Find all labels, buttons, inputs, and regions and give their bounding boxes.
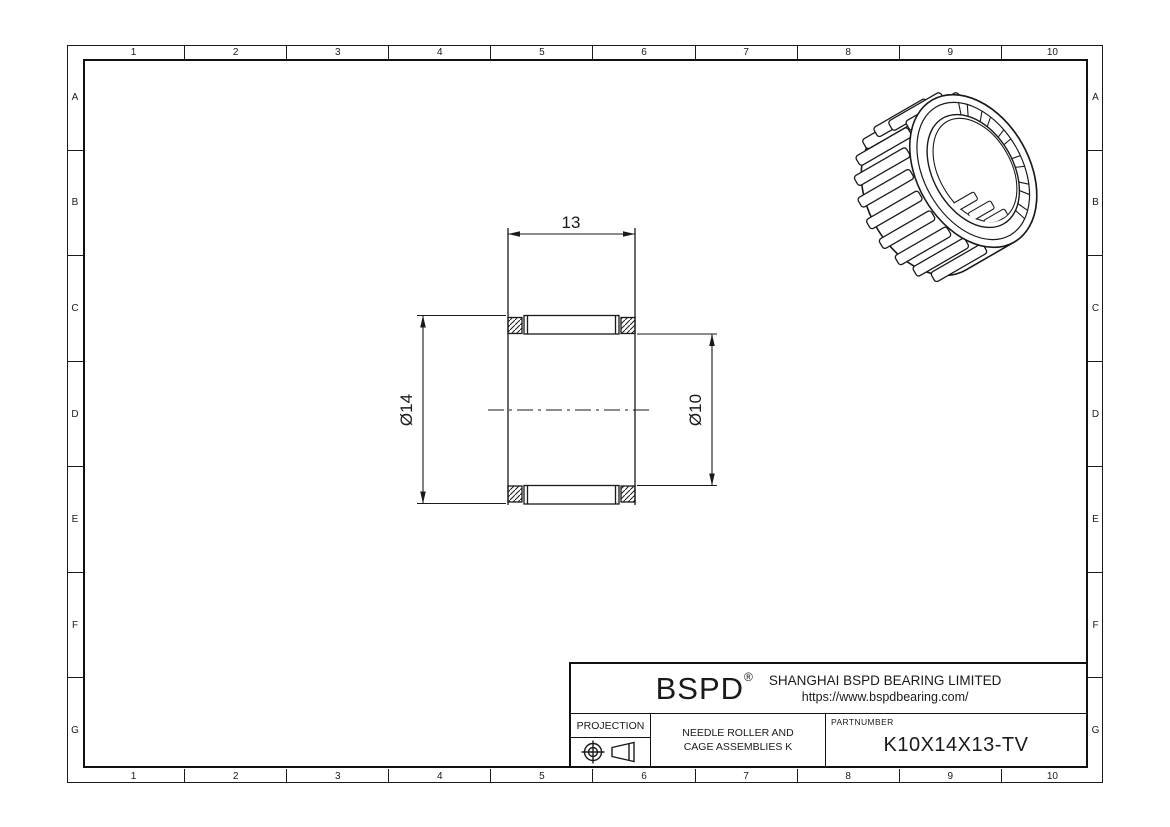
grid-band-left: A B C D E F G: [67, 45, 83, 783]
grid-row-label: C: [67, 255, 83, 361]
registered-trademark-icon: ®: [744, 671, 753, 683]
grid-row-label: E: [67, 466, 83, 572]
grid-col-label: 2: [184, 769, 286, 783]
grid-col-label: 9: [899, 45, 1001, 59]
part-number: K10X14X13-TV: [826, 734, 1086, 757]
logo-text: BSPD: [656, 673, 744, 704]
grid-row-label: B: [67, 150, 83, 256]
product-description-cell: NEEDLE ROLLER AND CAGE ASSEMBLIES K: [651, 714, 826, 766]
company-name: SHANGHAI BSPD BEARING LIMITED: [769, 672, 1002, 690]
grid-col-label: 5: [490, 45, 592, 59]
grid-col-label: 7: [695, 45, 797, 59]
grid-col-label: 4: [388, 769, 490, 783]
grid-col-label: 8: [797, 769, 899, 783]
product-line1: NEEDLE ROLLER AND: [682, 726, 793, 740]
grid-band-top: 1 2 3 4 5 6 7 8 9 10: [83, 45, 1103, 59]
grid-row-label: C: [1088, 255, 1103, 361]
grid-col-label: 4: [388, 45, 490, 59]
grid-col-label: 6: [592, 769, 694, 783]
grid-band-bottom: 1 2 3 4 5 6 7 8 9 10: [83, 769, 1103, 783]
grid-col-label: 7: [695, 769, 797, 783]
title-block-detail-row: PROJECTION NEEDLE ROLLER AND CAGE ASSEMB…: [571, 714, 1086, 766]
grid-col-label: 1: [83, 769, 184, 783]
grid-col-label: 2: [184, 45, 286, 59]
projection-cell: PROJECTION: [571, 714, 651, 766]
grid-col-label: 5: [490, 769, 592, 783]
product-line2: CAGE ASSEMBLIES K: [684, 740, 793, 754]
grid-col-label: 3: [286, 769, 388, 783]
title-block-company-row: BSPD ® SHANGHAI BSPD BEARING LIMITED htt…: [571, 664, 1086, 714]
title-block: BSPD ® SHANGHAI BSPD BEARING LIMITED htt…: [569, 662, 1088, 768]
grid-col-label: 8: [797, 45, 899, 59]
grid-col-label: 3: [286, 45, 388, 59]
grid-row-label: D: [1088, 361, 1103, 467]
grid-row-label: A: [67, 45, 83, 150]
grid-row-label: F: [67, 572, 83, 678]
grid-col-label: 1: [83, 45, 184, 59]
partnumber-label: PARTNUMBER: [831, 717, 894, 727]
grid-col-label: 9: [899, 769, 1001, 783]
projection-label: PROJECTION: [571, 714, 650, 738]
grid-row-label: A: [1088, 45, 1103, 150]
grid-row-label: F: [1088, 572, 1103, 678]
grid-band-right: A B C D E F G: [1088, 45, 1103, 783]
grid-row-label: B: [1088, 150, 1103, 256]
grid-row-label: G: [1088, 677, 1103, 783]
company-logo: BSPD ®: [656, 673, 753, 704]
first-angle-projection-icon: [571, 738, 650, 766]
grid-row-label: D: [67, 361, 83, 467]
grid-row-label: G: [67, 677, 83, 783]
partnumber-cell: PARTNUMBER K10X14X13-TV: [826, 714, 1086, 766]
company-website-link[interactable]: https://www.bspdbearing.com/: [769, 689, 1002, 705]
grid-col-label: 6: [592, 45, 694, 59]
grid-row-label: E: [1088, 466, 1103, 572]
